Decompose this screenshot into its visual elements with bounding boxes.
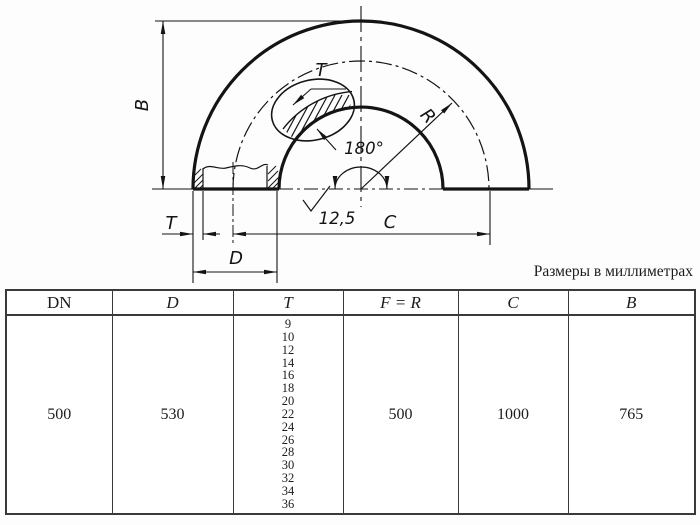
cell-t-values: 9 10 12 14 16 18 20 22 24 26 28 30 32 34…: [233, 315, 343, 514]
label-t: T: [166, 213, 179, 234]
cell-d: 530: [112, 315, 233, 514]
dimensions-table: DN D T F = R C B 500 530 9 10 12 14 16 1…: [5, 289, 696, 515]
t-leader-arrow-outer: [293, 89, 311, 105]
col-header-t: T: [233, 290, 343, 315]
label-c: C: [384, 212, 397, 233]
cell-c: 1000: [458, 315, 568, 514]
extension-lines: [193, 191, 490, 283]
label-b: B: [132, 99, 153, 111]
elbow-180-technical-drawing: T B T C D R 180° 12,5: [0, 0, 700, 288]
cell-dn: 500: [6, 315, 112, 514]
label-angle: 180°: [344, 139, 384, 158]
label-t-section: T: [316, 60, 329, 81]
table-header-row: DN D T F = R C B: [6, 290, 695, 315]
label-r: R: [416, 105, 440, 128]
label-roughness: 12,5: [319, 209, 356, 228]
table-row: 500 530 9 10 12 14 16 18 20 22 24 26 28 …: [6, 315, 695, 514]
units-note: Размеры в миллиметрах: [534, 263, 693, 281]
col-header-f-r: F = R: [343, 290, 458, 315]
roughness-mark: [303, 186, 330, 211]
col-header-b: B: [568, 290, 695, 315]
col-header-c: C: [458, 290, 568, 315]
cell-f-r: 500: [343, 315, 458, 514]
col-header-d: D: [112, 290, 233, 315]
col-header-dn: DN: [6, 290, 112, 315]
label-d: D: [229, 248, 243, 269]
cell-b: 765: [568, 315, 695, 514]
